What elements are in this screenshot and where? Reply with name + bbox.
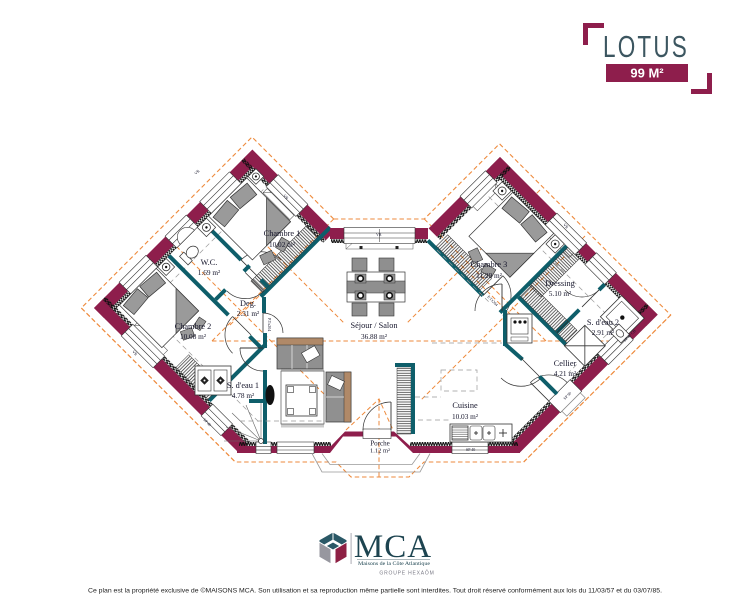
svg-text:S. d'eau 2: S. d'eau 2	[587, 318, 619, 327]
svg-text:Maisons de la Côte Atlantique: Maisons de la Côte Atlantique	[358, 561, 431, 567]
svg-text:Porche: Porche	[370, 440, 389, 448]
svg-text:W.C.: W.C.	[201, 258, 218, 267]
svg-text:Chambre 1: Chambre 1	[264, 229, 301, 238]
svg-text:10.02 m²: 10.02 m²	[269, 240, 296, 249]
svg-text:99 M²: 99 M²	[630, 66, 664, 81]
svg-text:Ce plan est la propriété exclu: Ce plan est la propriété exclusive de ©M…	[88, 587, 662, 595]
svg-text:2.91 m²: 2.91 m²	[592, 328, 615, 337]
svg-text:Chambre 2: Chambre 2	[175, 322, 212, 331]
svg-text:2.31 m²: 2.31 m²	[237, 309, 260, 318]
svg-text:10.08 m²: 10.08 m²	[180, 332, 207, 341]
svg-text:Cellier: Cellier	[554, 359, 577, 368]
svg-text:1.12 m²: 1.12 m²	[370, 448, 390, 455]
svg-text:Cuisine: Cuisine	[452, 401, 478, 410]
svg-text:VR: VR	[376, 232, 382, 237]
svg-text:Séjour / Salon: Séjour / Salon	[350, 321, 398, 330]
svg-text:1.69 m²: 1.69 m²	[198, 268, 221, 277]
svg-text:Deg.: Deg.	[240, 299, 256, 308]
svg-text:10.03 m²: 10.03 m²	[452, 412, 479, 421]
svg-text:Dressing: Dressing	[545, 279, 575, 288]
svg-text:5.10 m²: 5.10 m²	[549, 289, 572, 298]
svg-text:S. d'eau 1: S. d'eau 1	[227, 381, 259, 390]
svg-text:4.78 m²: 4.78 m²	[232, 391, 255, 400]
svg-text:P.Tx204: P.Tx204	[267, 318, 272, 331]
svg-text:GROUPE HEXAÔM: GROUPE HEXAÔM	[379, 570, 434, 577]
svg-text:Chambre 3: Chambre 3	[471, 260, 508, 269]
svg-text:SP 40: SP 40	[466, 447, 475, 452]
svg-text:LOTUS: LOTUS	[603, 29, 689, 64]
svg-text:4.21 m²: 4.21 m²	[554, 369, 577, 378]
svg-text:11.29 m²: 11.29 m²	[476, 271, 503, 280]
svg-text:36.88 m²: 36.88 m²	[361, 332, 388, 341]
